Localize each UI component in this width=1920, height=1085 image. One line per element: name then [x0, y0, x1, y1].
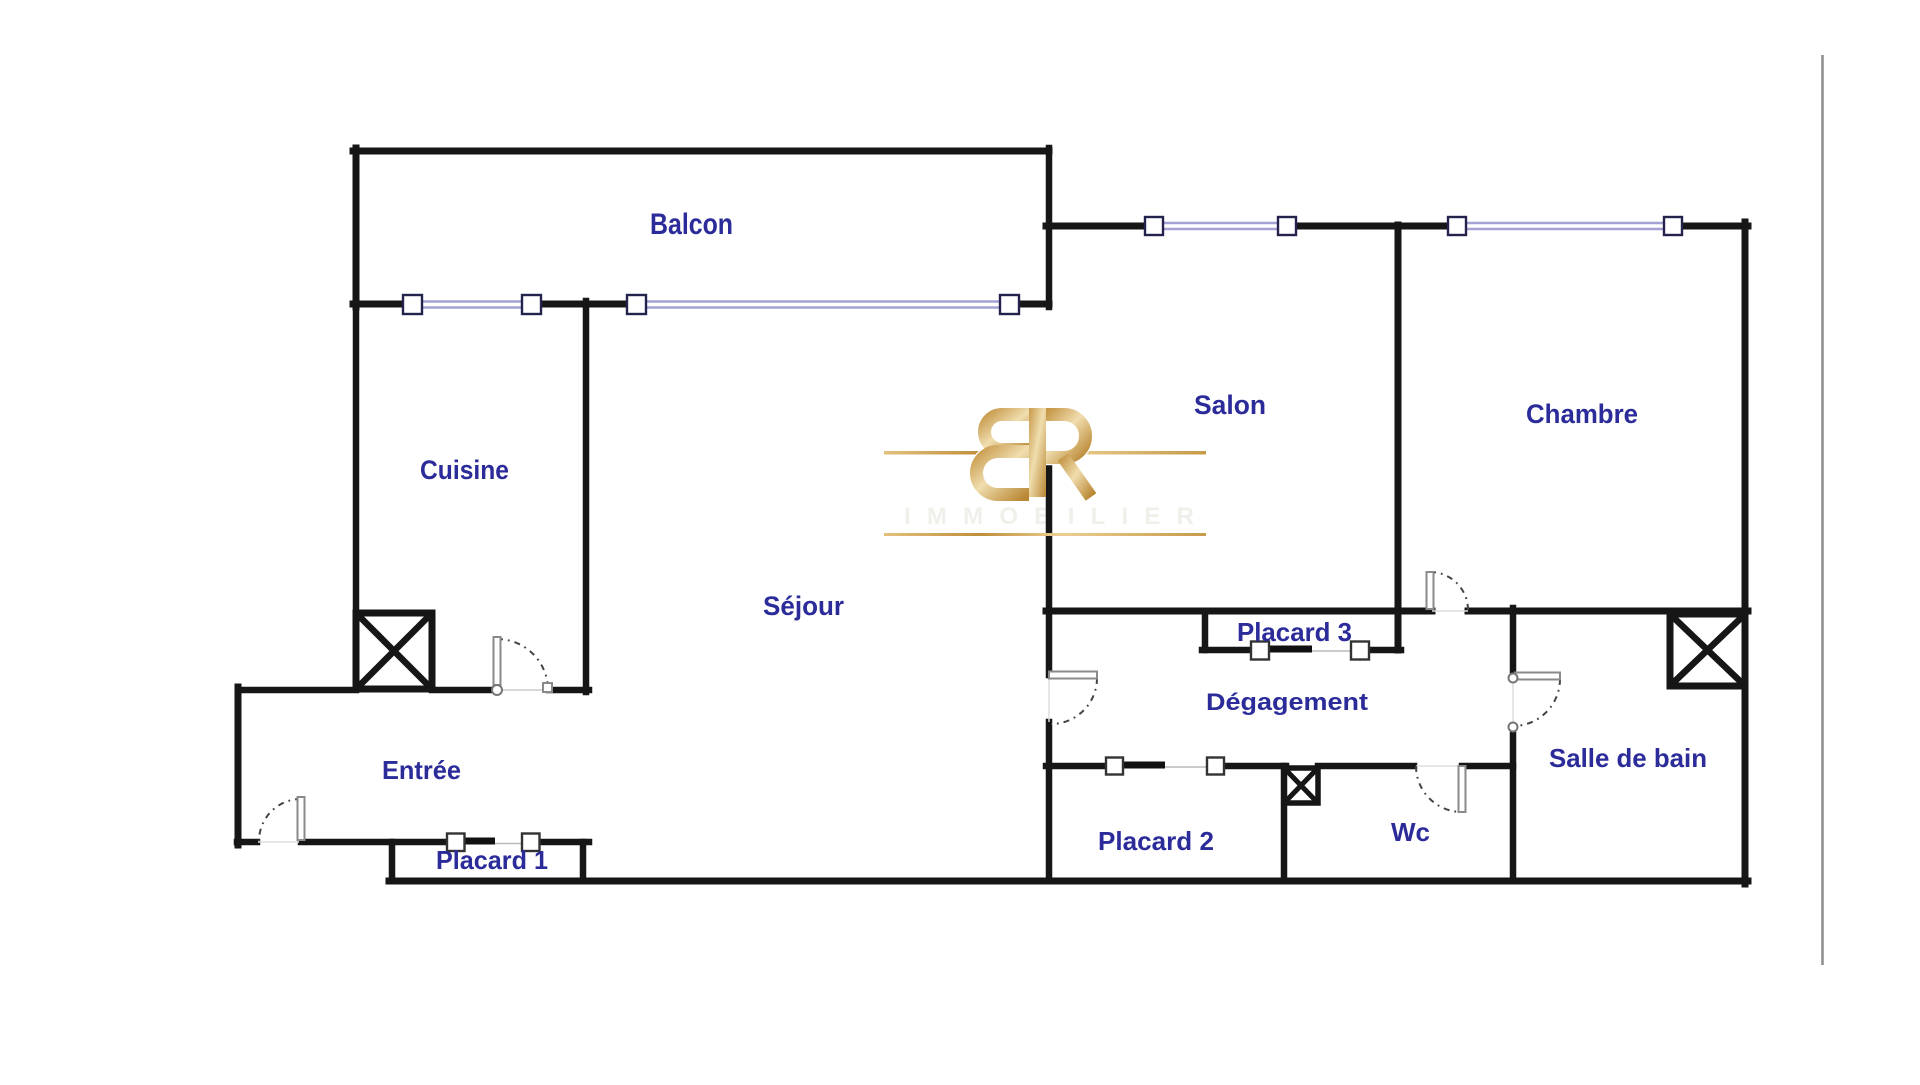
- svg-text:Placard 3: Placard 3: [1237, 617, 1352, 647]
- svg-text:Entrée: Entrée: [382, 755, 461, 785]
- svg-text:Placard 1: Placard 1: [436, 845, 548, 875]
- svg-text:Chambre: Chambre: [1526, 399, 1638, 429]
- svg-text:Cuisine: Cuisine: [420, 455, 509, 485]
- svg-text:Séjour: Séjour: [763, 591, 844, 621]
- svg-text:IMMOBILIER: IMMOBILIER: [904, 503, 1208, 530]
- svg-text:Wc: Wc: [1391, 817, 1430, 847]
- svg-text:Salon: Salon: [1194, 390, 1266, 420]
- svg-text:Dégagement: Dégagement: [1206, 689, 1368, 716]
- svg-text:Salle de bain: Salle de bain: [1549, 743, 1707, 773]
- svg-text:Placard 2: Placard 2: [1098, 826, 1214, 856]
- svg-text:Balcon: Balcon: [650, 208, 733, 241]
